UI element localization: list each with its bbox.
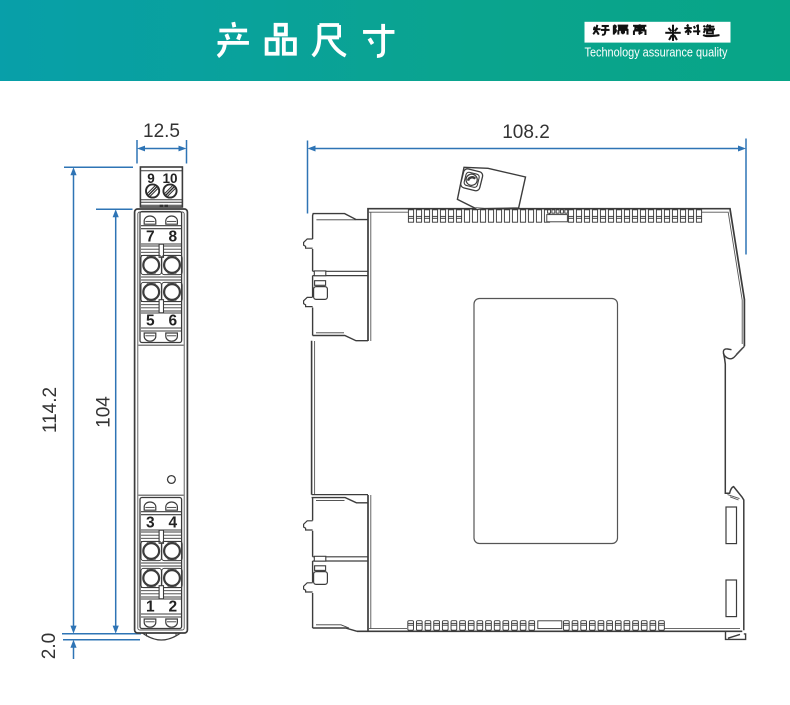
svg-text:12.5: 12.5	[143, 121, 180, 142]
svg-text:4: 4	[168, 515, 177, 532]
svg-text:5: 5	[146, 313, 155, 330]
svg-text:Technology assurance quality: Technology assurance quality	[585, 45, 728, 60]
svg-text:7: 7	[146, 229, 155, 246]
svg-text:1: 1	[146, 599, 155, 616]
svg-text:104: 104	[94, 396, 115, 428]
svg-text:2: 2	[168, 599, 177, 616]
svg-text:114.2: 114.2	[40, 387, 61, 433]
svg-text:6: 6	[168, 313, 177, 330]
svg-text:108.2: 108.2	[502, 122, 550, 143]
svg-text:2.0: 2.0	[39, 633, 60, 659]
svg-text:8: 8	[168, 229, 177, 246]
svg-text:3: 3	[146, 515, 155, 532]
